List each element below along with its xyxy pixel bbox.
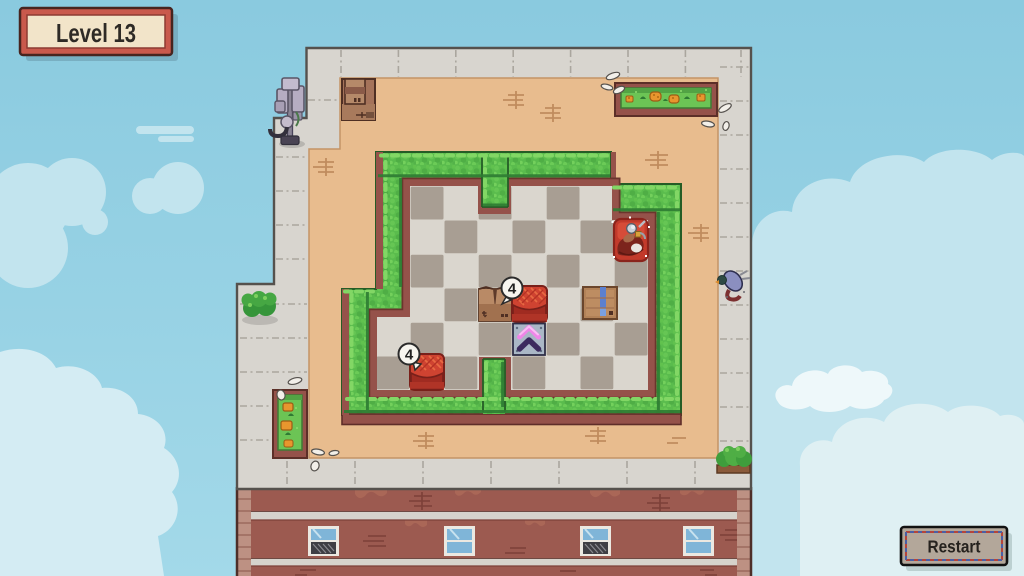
svg-text:4: 4 <box>508 281 517 298</box>
svg-text:Restart: Restart <box>928 537 981 557</box>
svg-text:Level 13: Level 13 <box>56 18 136 48</box>
svg-text:4: 4 <box>405 347 414 364</box>
